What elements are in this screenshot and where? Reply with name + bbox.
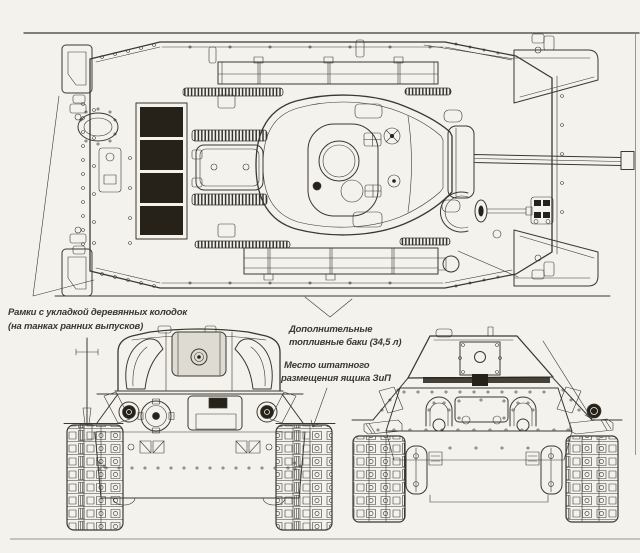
vent-cover-rear	[353, 212, 382, 227]
headlight-right	[257, 402, 277, 422]
rear-view-rivets	[377, 389, 580, 431]
vent-cover-front	[355, 104, 382, 118]
turret-ring-edge	[408, 116, 412, 212]
cheek-guard-left	[126, 339, 163, 389]
tow-brackets-front	[128, 441, 272, 453]
turret-front	[115, 326, 283, 391]
turret-rear-plate	[460, 342, 500, 375]
fuel-tank-bottom	[244, 248, 459, 280]
rear-deck-panel	[99, 148, 121, 192]
mantlet-front	[172, 332, 226, 376]
zip-label-line2: размещения ящика ЗиП	[280, 373, 391, 384]
top-view	[55, 34, 634, 296]
front-track-left	[67, 425, 123, 530]
turret-rear	[408, 327, 553, 386]
front-track-right	[276, 425, 332, 530]
tank-three-view-drawing: Рамки с укладкой деревянных колодок (на …	[0, 0, 640, 553]
sprocket-housing-right	[526, 446, 562, 494]
wood-block-frame-bottom	[62, 249, 92, 296]
zip-box	[570, 419, 613, 434]
rear-track-left	[353, 436, 405, 522]
periscope-port	[341, 180, 363, 202]
front-view-rivets	[98, 462, 301, 470]
rear-cap	[587, 404, 601, 418]
engine-grille	[136, 103, 187, 239]
frames-label-line2: (на танках ранних выпусков)	[8, 321, 143, 332]
transmission-plate	[192, 95, 263, 237]
driver-port	[138, 399, 174, 433]
fender-post-left	[209, 47, 216, 63]
exhaust-cover-left	[426, 397, 452, 431]
front-view	[64, 326, 335, 530]
rear-deck-hatch	[78, 108, 118, 145]
scanned-tank-drawing-page: Рамки с укладкой деревянных колодок (на …	[0, 0, 640, 553]
gun-muzzle	[621, 152, 634, 170]
mg-barrel	[487, 209, 526, 213]
fender-brace-bottom	[458, 251, 518, 277]
frames-label-line1: Рамки с укладкой деревянных колодок	[8, 307, 188, 318]
fuel-tank-top	[218, 57, 438, 84]
tow-hooks-lower	[113, 498, 285, 505]
leader-fuel-chevron	[305, 297, 352, 317]
zip-label-line1: Место штатного	[284, 360, 370, 371]
fuel-label-line2: топливные баки (34,5 л)	[289, 337, 401, 348]
frame-fittings	[70, 95, 86, 254]
fuel-label-line1: Дополнительные	[288, 324, 373, 335]
glacis-fitting-plate	[531, 197, 553, 224]
front-fender-bottom	[458, 230, 598, 286]
rear-view	[352, 327, 622, 522]
roof-fittings	[364, 128, 400, 197]
leader-zip-front	[311, 388, 327, 427]
slope-bracket-right	[557, 387, 581, 413]
headlight-left	[119, 402, 139, 422]
glacis	[440, 34, 554, 279]
turret-hatch	[319, 141, 359, 181]
rear-track-right	[566, 436, 618, 522]
driver-hatch-front	[188, 396, 242, 430]
fender-box-left	[364, 420, 402, 434]
sprocket-housing-left	[406, 446, 442, 494]
transmission-hatch-rear	[455, 397, 508, 424]
exhaust-cover-right	[510, 397, 536, 431]
turret-hatch-ring	[308, 124, 378, 216]
leader-frames	[33, 96, 94, 296]
leader-zip-rear	[543, 341, 592, 419]
turret-top	[256, 95, 452, 235]
tow-hook-bottom	[532, 255, 554, 279]
cheek-guard-right	[235, 339, 272, 389]
wood-block-frame-top	[62, 45, 92, 93]
